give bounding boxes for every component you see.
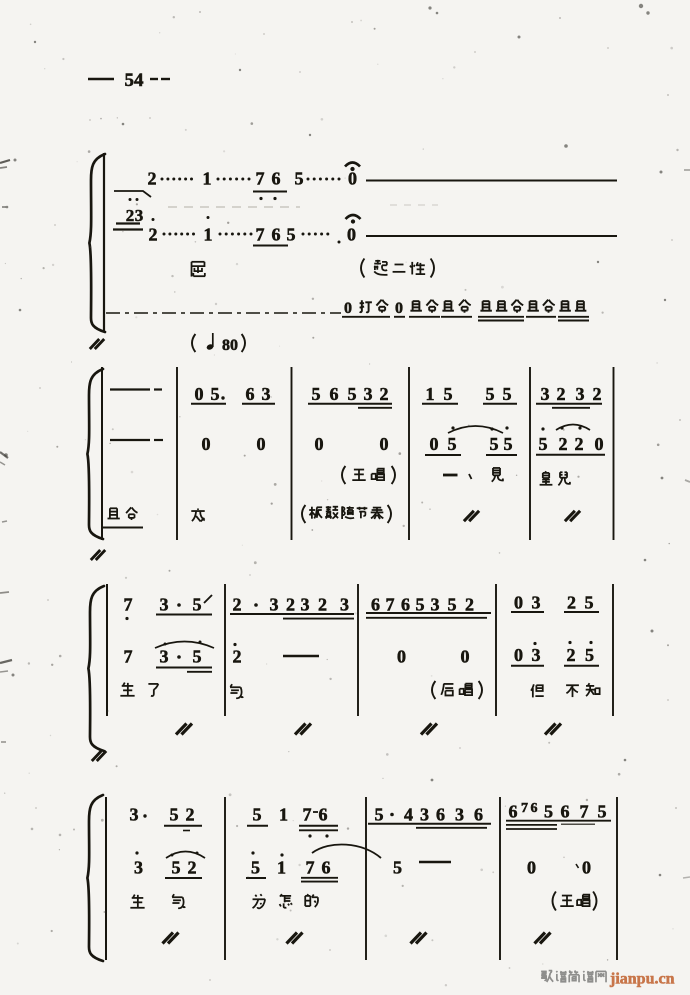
svg-text:0: 0 (461, 647, 470, 667)
svg-text:2: 2 (188, 858, 197, 878)
svg-text:7: 7 (256, 169, 265, 189)
svg-text:7: 7 (124, 595, 133, 615)
svg-text:3: 3 (262, 384, 271, 404)
svg-text:7: 7 (580, 802, 589, 822)
svg-text:3: 3 (420, 805, 429, 825)
svg-text:5: 5 (490, 434, 499, 454)
svg-text:5: 5 (544, 802, 553, 822)
svg-text:2: 2 (233, 595, 242, 615)
svg-text:0: 0 (595, 434, 604, 454)
svg-text:2: 2 (148, 169, 157, 189)
svg-text:5: 5 (375, 805, 384, 825)
svg-text:3: 3 (364, 384, 373, 404)
svg-text:5: 5 (448, 595, 457, 615)
svg-text:6: 6 (330, 384, 339, 404)
svg-text:5: 5 (172, 858, 181, 878)
svg-text:5: 5 (170, 805, 179, 825)
svg-text:jianpu.cn: jianpu.cn (609, 971, 675, 988)
svg-text:3: 3 (455, 805, 464, 825)
svg-text:6: 6 (531, 801, 538, 816)
svg-text:3: 3 (301, 595, 310, 615)
svg-text:5: 5 (503, 384, 512, 404)
svg-text:7: 7 (303, 805, 312, 825)
svg-text:2: 2 (557, 384, 566, 404)
svg-text:7: 7 (386, 595, 395, 615)
svg-text:6: 6 (371, 595, 380, 615)
svg-text:5: 5 (539, 434, 548, 454)
svg-text:2: 2 (465, 595, 474, 615)
svg-text:2: 2 (126, 206, 135, 225)
svg-text:2: 2 (559, 434, 568, 454)
svg-text:0: 0 (347, 225, 356, 245)
svg-text:2: 2 (149, 225, 158, 245)
svg-text:2: 2 (593, 384, 602, 404)
svg-text:2: 2 (567, 593, 576, 613)
svg-text:5: 5 (444, 384, 453, 404)
svg-text:0: 0 (514, 645, 523, 665)
svg-text:7: 7 (256, 225, 265, 245)
svg-text:7: 7 (124, 647, 133, 667)
svg-text:5: 5 (348, 384, 357, 404)
svg-text:5: 5 (393, 858, 402, 878)
svg-text:0: 0 (430, 434, 439, 454)
svg-text:3: 3 (431, 595, 440, 615)
svg-text:6: 6 (474, 805, 483, 825)
svg-text:5: 5 (585, 593, 594, 613)
svg-text:5: 5 (295, 169, 304, 189)
svg-text:3: 3 (576, 384, 585, 404)
svg-text:3: 3 (541, 384, 550, 404)
svg-text:0: 0 (195, 384, 204, 404)
svg-text:3: 3 (134, 858, 143, 878)
svg-text:3: 3 (532, 593, 541, 613)
svg-text:0: 0 (257, 434, 266, 454)
svg-text:5: 5 (211, 384, 220, 404)
svg-text:6: 6 (319, 805, 328, 825)
svg-text:0: 0 (315, 434, 324, 454)
svg-text:0: 0 (582, 858, 591, 878)
svg-text:0: 0 (380, 434, 389, 454)
svg-text:6: 6 (272, 225, 281, 245)
svg-text:5: 5 (193, 595, 202, 615)
svg-text:6: 6 (322, 858, 331, 878)
svg-text:5: 5 (253, 805, 262, 825)
svg-text:2: 2 (318, 595, 327, 615)
svg-text:2: 2 (286, 595, 295, 615)
svg-text:7: 7 (306, 858, 315, 878)
svg-text:1: 1 (279, 805, 288, 825)
svg-text:5: 5 (287, 225, 296, 245)
svg-text:0: 0 (527, 858, 536, 878)
svg-text:6: 6 (272, 169, 281, 189)
svg-text:2: 2 (567, 645, 576, 665)
svg-text:5: 5 (193, 647, 202, 667)
svg-text:5: 5 (448, 434, 457, 454)
svg-text:0: 0 (344, 300, 352, 317)
svg-text:2: 2 (233, 647, 242, 667)
svg-text:5: 5 (486, 384, 495, 404)
svg-text:0: 0 (202, 434, 211, 454)
svg-text:3: 3 (135, 206, 144, 225)
svg-text:6: 6 (246, 384, 255, 404)
svg-text:3: 3 (340, 595, 349, 615)
svg-text:0: 0 (514, 593, 523, 613)
svg-text:3: 3 (270, 595, 279, 615)
svg-text:2: 2 (186, 805, 195, 825)
svg-text:7: 7 (521, 801, 528, 816)
svg-text:5: 5 (416, 595, 425, 615)
svg-text:1: 1 (203, 169, 212, 189)
svg-text:5: 5 (585, 645, 594, 665)
svg-text:2: 2 (380, 384, 389, 404)
svg-text:6: 6 (561, 802, 570, 822)
svg-text:4: 4 (404, 805, 413, 825)
svg-text:1: 1 (204, 225, 213, 245)
svg-text:1: 1 (426, 384, 435, 404)
svg-text:2: 2 (575, 434, 584, 454)
svg-text:0: 0 (395, 300, 403, 317)
svg-text:6: 6 (509, 802, 518, 822)
svg-text:0: 0 (397, 647, 406, 667)
svg-text:3: 3 (532, 645, 541, 665)
svg-text:5: 5 (251, 858, 260, 878)
svg-text:0: 0 (348, 169, 357, 189)
svg-text:5: 5 (598, 802, 607, 822)
svg-text:54: 54 (125, 70, 145, 91)
svg-text:3: 3 (160, 595, 169, 615)
svg-text:5: 5 (312, 384, 321, 404)
svg-text:3: 3 (130, 805, 139, 825)
svg-text:80: 80 (222, 337, 238, 354)
svg-text:3: 3 (160, 647, 169, 667)
svg-text:1: 1 (277, 858, 286, 878)
svg-text:5: 5 (504, 434, 513, 454)
svg-text:6: 6 (401, 595, 410, 615)
svg-text:6: 6 (436, 805, 445, 825)
